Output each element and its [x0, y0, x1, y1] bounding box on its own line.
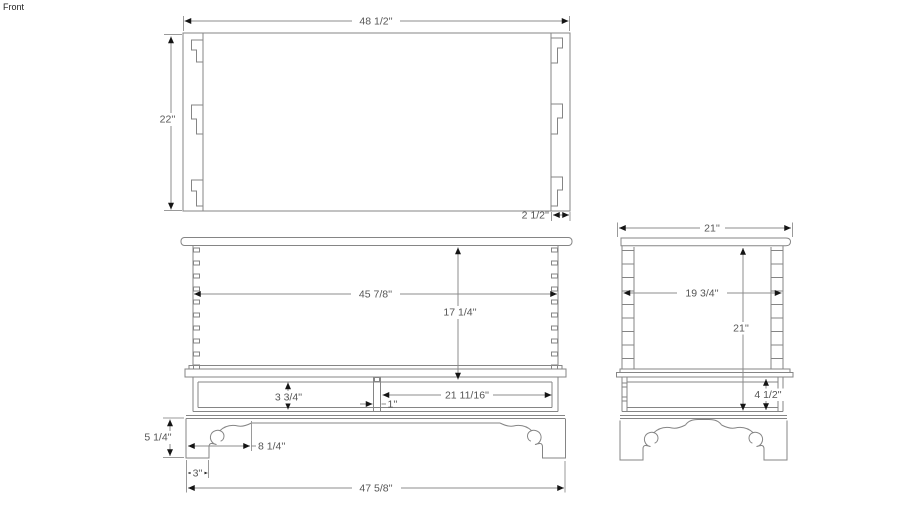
side-molding: [617, 373, 794, 378]
dim-front-drawer-opening: 21 11/16'': [445, 389, 489, 401]
side-back-dovetail-ticks: [622, 251, 634, 359]
dimension-front-foot-width: 3'': [187, 460, 209, 480]
dimension-front-interior-width: 45 7/8'': [194, 288, 557, 301]
dimension-top-overall-width: 48 1/2'': [184, 15, 570, 31]
front-molding-top: [189, 366, 562, 370]
side-left-bracket-foot: [620, 421, 686, 461]
front-base-top: [186, 416, 565, 419]
dimension-front-divider-width: 1'': [360, 399, 397, 411]
front-left-bracket-foot: [186, 419, 252, 459]
dim-front-overall-width: 47 5/8'': [359, 482, 392, 494]
side-view: 21'' 19 3/4'' 21'' 4 1/2'': [617, 222, 794, 460]
scene-label: Front: [3, 2, 25, 12]
front-molding: [185, 369, 566, 377]
dimension-front-drawer-opening: 21 11/16'': [383, 389, 552, 402]
dim-front-divider-width: 1'': [388, 399, 398, 411]
top-view-outline: [183, 33, 570, 211]
dimension-front-rail-height: 3 3/4'': [272, 383, 306, 410]
side-right-bracket-foot: [722, 421, 788, 461]
dim-side-skirt-height: 4 1/2'': [754, 389, 781, 401]
dim-side-overall-height: 21'': [733, 322, 749, 334]
dim-top-overall-width: 48 1/2'': [359, 16, 392, 28]
dim-top-overall-depth: 22'': [160, 114, 176, 126]
side-base-top: [620, 416, 787, 419]
dimension-front-overall-width: 47 5/8'': [187, 461, 566, 495]
dim-front-bracket-width: 8 1/4'': [258, 441, 285, 453]
dimension-front-base-height: 5 1/4'': [142, 418, 184, 458]
side-base-arch: [686, 420, 722, 426]
drawing-canvas: 48 1/2'' 22'' 2 1/2'': [0, 0, 910, 512]
front-view: 45 7/8'' 17 1/4'' 3 3/4'' 21 11/16'' 1''…: [142, 238, 572, 496]
dim-side-overall-depth: 21'': [704, 222, 720, 234]
dim-front-base-height: 5 1/4'': [144, 432, 171, 444]
dim-top-side-thickness: 2 1/2'': [522, 210, 549, 222]
dimension-side-overall-height: 21'': [729, 248, 753, 411]
dim-front-case-height: 17 1/4'': [443, 307, 476, 319]
side-band-dovetail-ticks: [622, 383, 627, 401]
top-view: 48 1/2'' 22'' 2 1/2'': [154, 15, 570, 222]
dimension-side-interior-depth: 19 3/4'': [624, 287, 782, 300]
front-right-bracket-foot: [500, 419, 566, 459]
drawing-page: 48 1/2'' 22'' 2 1/2'': [0, 0, 910, 512]
dimension-side-overall-depth: 21'': [618, 222, 793, 237]
front-left-dovetails: [194, 248, 200, 369]
side-front-dovetail-ticks: [771, 251, 783, 359]
dimension-side-skirt-height: 4 1/2'': [752, 379, 784, 410]
dimension-front-case-height: 17 1/4'': [442, 248, 479, 380]
dim-front-foot-width: 3'': [193, 468, 203, 480]
side-molding-top: [620, 369, 790, 373]
front-lid: [181, 238, 572, 246]
front-right-dovetails: [552, 248, 558, 369]
dim-front-interior-width: 45 7/8'': [359, 289, 392, 301]
side-lid: [621, 238, 791, 246]
dim-front-rail-height: 3 3/4'': [275, 391, 302, 403]
dimension-top-overall-depth: 22'': [154, 35, 182, 211]
dim-side-interior-depth: 19 3/4'': [685, 287, 718, 299]
top-view-left-notches: [192, 40, 204, 206]
top-view-right-notches: [551, 38, 563, 206]
